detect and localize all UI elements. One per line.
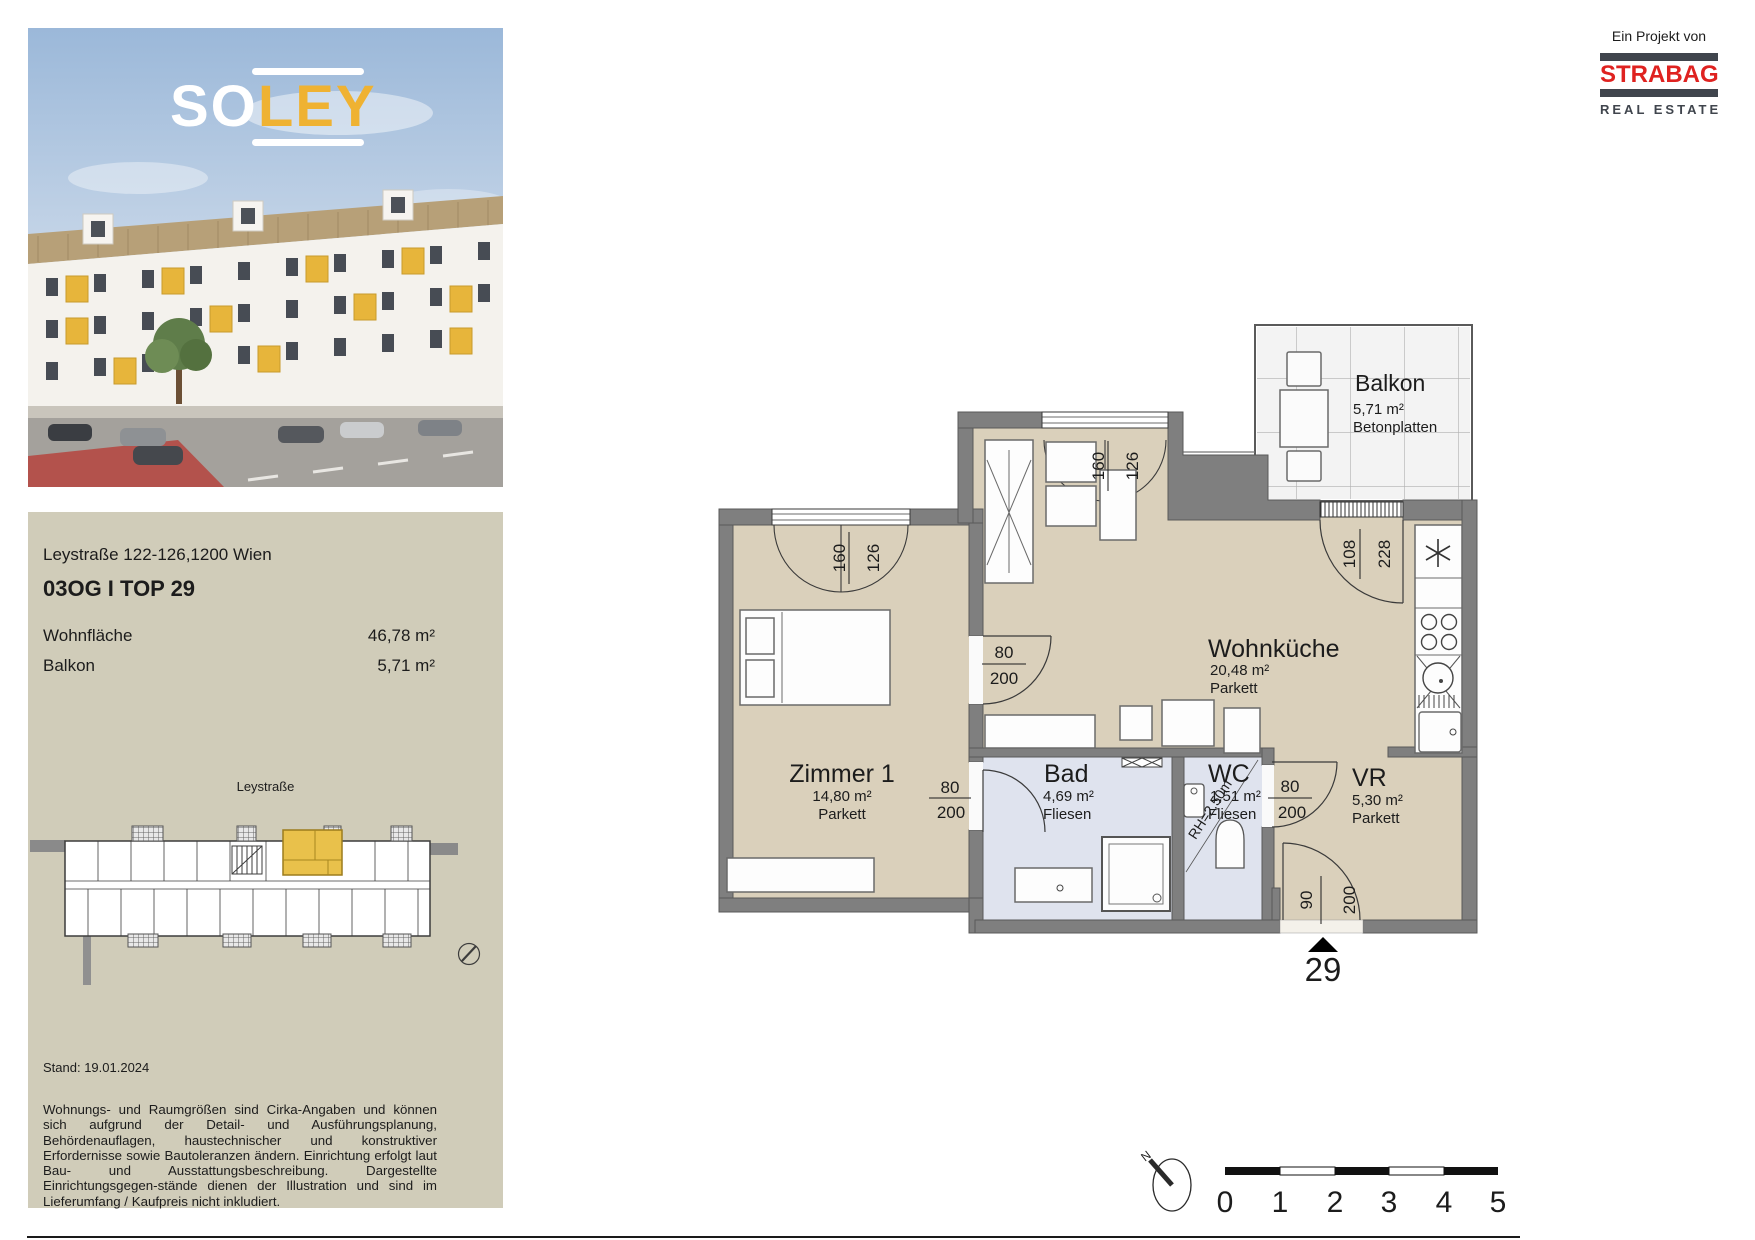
dining-table bbox=[1162, 700, 1214, 746]
sofa-seat bbox=[1046, 486, 1096, 526]
svg-text:Betonplatten: Betonplatten bbox=[1353, 419, 1437, 436]
svg-text:160: 160 bbox=[830, 544, 849, 572]
unit-marker: 29 bbox=[1305, 937, 1342, 988]
exposé-page: SOLEY Ein Projekt von STRABAG REAL ESTAT… bbox=[0, 0, 1755, 1240]
scale-bar: 0 1 2 3 4 5 bbox=[1217, 1167, 1507, 1219]
svg-text:5,30 m²: 5,30 m² bbox=[1352, 792, 1403, 809]
scale-tick: 0 bbox=[1217, 1186, 1234, 1219]
svg-text:Fliesen: Fliesen bbox=[1208, 806, 1256, 823]
svg-text:228: 228 bbox=[1375, 540, 1394, 568]
pillow bbox=[746, 660, 774, 697]
room-label-bad: Bad 4,69 m² Fliesen bbox=[1043, 760, 1094, 823]
scale-tick: 5 bbox=[1490, 1186, 1507, 1219]
svg-text:Parkett: Parkett bbox=[818, 806, 866, 823]
svg-text:Parkett: Parkett bbox=[1352, 810, 1400, 827]
svg-text:5,71 m²: 5,71 m² bbox=[1353, 401, 1404, 418]
entrance-arrow bbox=[1308, 937, 1338, 952]
chair bbox=[1224, 708, 1260, 753]
svg-text:20,48 m²: 20,48 m² bbox=[1210, 662, 1269, 679]
svg-text:Parkett: Parkett bbox=[1210, 680, 1258, 697]
svg-text:4,69 m²: 4,69 m² bbox=[1043, 788, 1094, 805]
washbasin-vanity bbox=[1015, 868, 1092, 902]
bottom-rule bbox=[27, 1236, 1520, 1238]
svg-text:Fliesen: Fliesen bbox=[1043, 806, 1091, 823]
svg-text:Balkon: Balkon bbox=[1355, 370, 1425, 396]
svg-text:1,51 m²: 1,51 m² bbox=[1210, 788, 1261, 805]
scale-tick: 2 bbox=[1327, 1186, 1344, 1219]
shower bbox=[1102, 837, 1170, 911]
sideboard bbox=[985, 715, 1095, 748]
pillow bbox=[746, 618, 774, 654]
unit-number: 29 bbox=[1305, 951, 1342, 988]
svg-text:14,80 m²: 14,80 m² bbox=[812, 788, 871, 805]
dishwasher-icon bbox=[1419, 712, 1461, 752]
svg-text:WC: WC bbox=[1208, 760, 1250, 788]
radiator bbox=[1122, 758, 1162, 767]
balcony-furniture bbox=[1280, 352, 1328, 481]
svg-text:126: 126 bbox=[1123, 452, 1142, 480]
svg-text:Bad: Bad bbox=[1044, 760, 1088, 788]
floor-plan: RH=2,50m Balkon 5,71 m² Betonplatten Woh… bbox=[0, 0, 1755, 1240]
scale-tick: 1 bbox=[1272, 1186, 1289, 1219]
svg-text:Wohnküche: Wohnküche bbox=[1208, 635, 1340, 663]
svg-text:80: 80 bbox=[941, 778, 960, 797]
svg-text:90: 90 bbox=[1297, 891, 1316, 910]
svg-text:160: 160 bbox=[1089, 452, 1108, 480]
scale-tick: 4 bbox=[1436, 1186, 1453, 1219]
svg-text:200: 200 bbox=[1340, 886, 1359, 914]
sideboard bbox=[727, 858, 874, 892]
scale-tick: 3 bbox=[1381, 1186, 1398, 1219]
svg-text:200: 200 bbox=[990, 669, 1018, 688]
toilet bbox=[1216, 820, 1244, 868]
svg-text:200: 200 bbox=[937, 803, 965, 822]
north-compass: N bbox=[1138, 1148, 1191, 1211]
svg-text:108: 108 bbox=[1340, 540, 1359, 568]
chair bbox=[1120, 706, 1152, 740]
svg-text:80: 80 bbox=[995, 643, 1014, 662]
balcony-threshold bbox=[1320, 502, 1403, 517]
svg-text:200: 200 bbox=[1278, 803, 1306, 822]
floor-zimmer1 bbox=[733, 523, 969, 898]
svg-text:80: 80 bbox=[1281, 777, 1300, 796]
svg-text:126: 126 bbox=[864, 544, 883, 572]
svg-text:Zimmer 1: Zimmer 1 bbox=[789, 760, 895, 788]
svg-text:VR: VR bbox=[1352, 764, 1387, 792]
kitchen-line bbox=[1415, 525, 1462, 753]
